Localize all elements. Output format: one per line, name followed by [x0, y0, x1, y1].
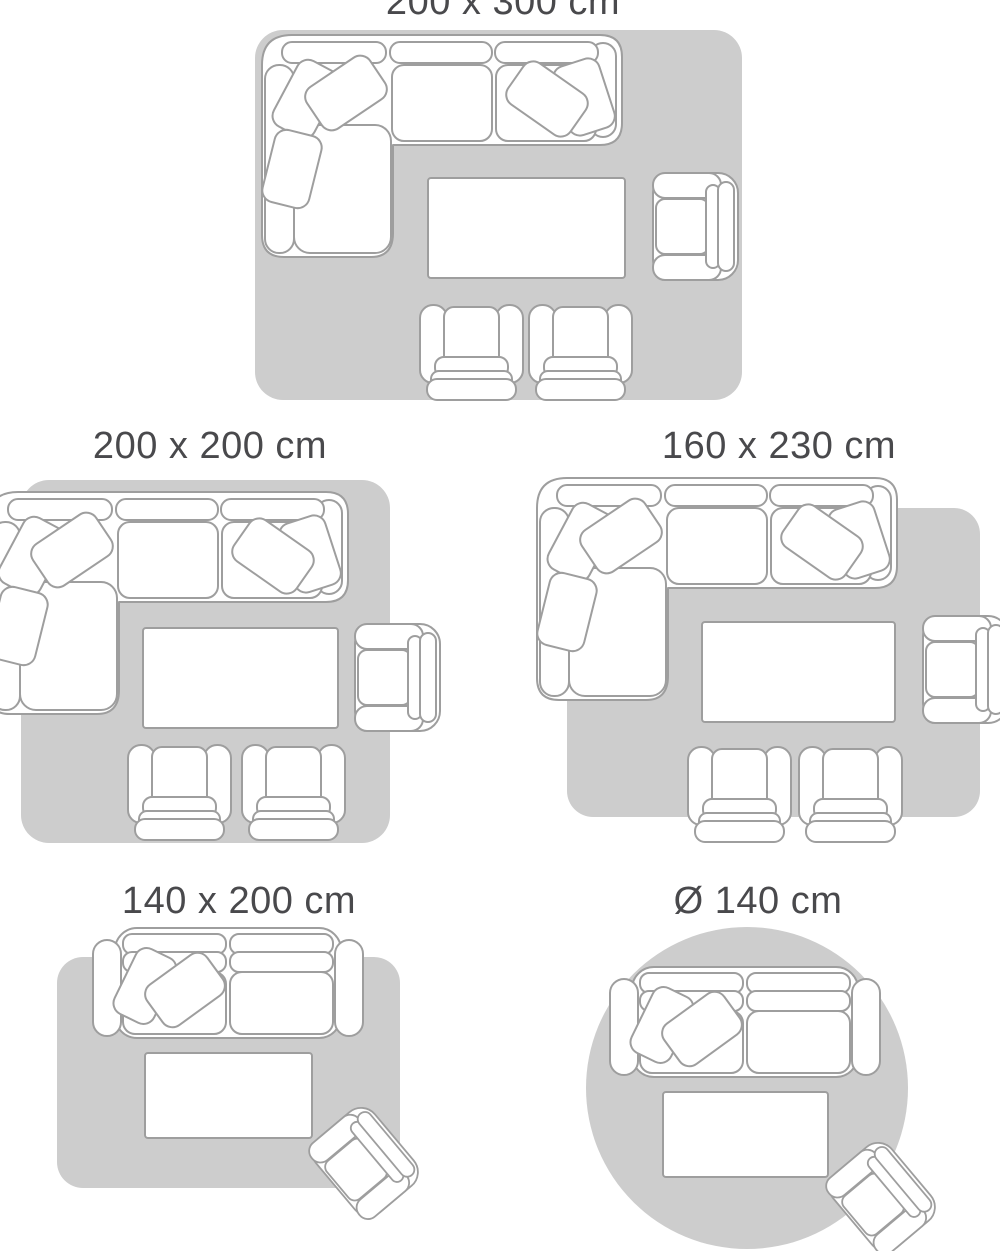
size-label-200x300: 200 x 300 cm: [386, 0, 620, 21]
size-label-140x200: 140 x 200 cm: [122, 882, 356, 920]
size-label-200x200: 200 x 200 cm: [93, 427, 327, 465]
lounge-chair: [128, 745, 231, 840]
coffee-table: [702, 622, 895, 722]
size-label-round-140: Ø 140 cm: [674, 882, 843, 920]
coffee-table: [145, 1053, 312, 1138]
armchair: [355, 624, 440, 731]
rug-size-guide: 200 x 300 cm 200 x 200 cm 160 x 230 cm 1…: [0, 0, 1000, 1251]
lounge-chair: [420, 305, 523, 400]
coffee-table: [428, 178, 625, 278]
armchair: [923, 616, 1000, 723]
layout-canvas: [0, 0, 1000, 1251]
lounge-chair: [799, 747, 902, 842]
panel-200x300: [255, 30, 742, 400]
panel-160x230: [535, 478, 1000, 842]
lounge-chair: [242, 745, 345, 840]
coffee-table: [663, 1092, 828, 1177]
panel-round-140: [586, 927, 942, 1251]
coffee-table: [143, 628, 338, 728]
lounge-chair: [529, 305, 632, 400]
lounge-chair: [688, 747, 791, 842]
armchair: [653, 173, 738, 280]
panel-200x200: [0, 480, 440, 843]
two-seat-sofa: [93, 928, 363, 1038]
size-label-160x230: 160 x 230 cm: [662, 427, 896, 465]
panel-140x200: [57, 928, 425, 1223]
two-seat-sofa: [610, 967, 880, 1077]
